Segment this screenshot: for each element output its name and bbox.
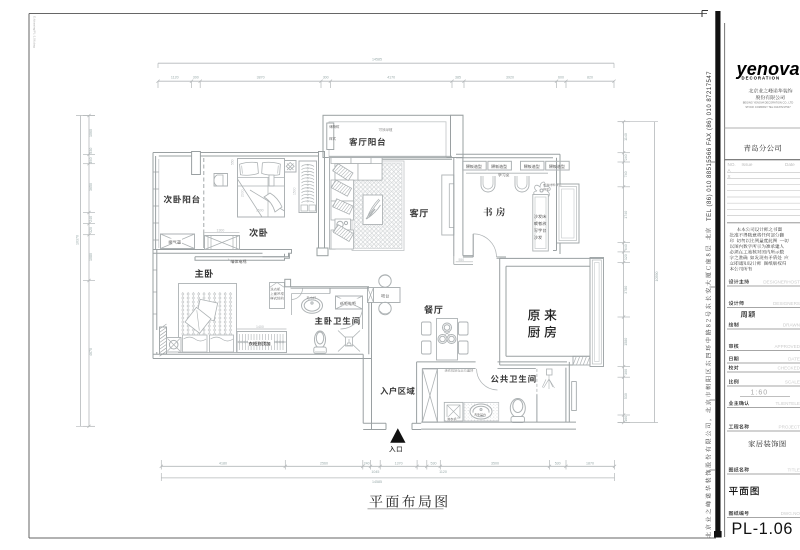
svg-text:DATE: DATE [788, 357, 800, 362]
svg-text:1300: 1300 [217, 228, 225, 232]
svg-text:TEL (86) 010 88515566 FAX (: TEL (86) 010 88515566 FAX (86) 010 87217… [707, 71, 713, 221]
svg-text:1500: 1500 [256, 209, 264, 213]
svg-text:10370: 10370 [76, 235, 80, 245]
svg-text:14585: 14585 [372, 480, 382, 484]
svg-text:SCALE: SCALE [785, 380, 800, 385]
svg-text:600: 600 [558, 76, 564, 80]
svg-text:550: 550 [231, 159, 235, 165]
svg-text:385: 385 [455, 76, 461, 80]
svg-text:Issue: Issue [742, 162, 753, 167]
svg-text:3650: 3650 [89, 183, 93, 191]
svg-text:320: 320 [624, 254, 628, 260]
svg-text:1120: 1120 [439, 470, 447, 474]
svg-text:3780: 3780 [624, 286, 628, 294]
svg-text:240: 240 [89, 157, 93, 163]
svg-text:TLIENTELE: TLIENTELE [775, 401, 800, 406]
svg-text:BEIJING YENOVA DECORATION CO.,: BEIJING YENOVA DECORATION CO., LTD [743, 101, 794, 105]
svg-text:4670: 4670 [89, 348, 93, 356]
svg-text:1120: 1120 [171, 76, 179, 80]
svg-text:1060: 1060 [89, 129, 93, 137]
svg-text:14585: 14585 [372, 58, 382, 62]
svg-text:300: 300 [624, 369, 628, 375]
svg-text:PROJECT: PROJECT [779, 425, 800, 430]
svg-text:DECORATION: DECORATION [742, 75, 781, 80]
svg-text:DESIGNERS: DESIGNERS [773, 301, 800, 306]
svg-text:Date: Date [785, 162, 795, 167]
svg-text:1:60: 1:60 [751, 390, 769, 397]
svg-text:1580: 1580 [624, 338, 628, 346]
svg-text:240: 240 [624, 154, 628, 160]
svg-text:530: 530 [431, 462, 437, 466]
svg-text:1140: 1140 [624, 133, 628, 141]
svg-text:160: 160 [624, 416, 628, 422]
svg-text:1370: 1370 [395, 462, 403, 466]
svg-text:CHECKED: CHECKED [778, 366, 800, 371]
svg-text:STOCK COMPANY TEL:010-87217547: STOCK COMPANY TEL:010-87217547 [745, 105, 791, 109]
svg-text:NO.: NO. [728, 162, 736, 167]
svg-text:10590: 10590 [655, 272, 659, 282]
svg-text:300: 300 [323, 76, 329, 80]
svg-text:A: A [728, 168, 732, 173]
svg-text:1870: 1870 [586, 462, 594, 466]
svg-text:APPROVED: APPROVED [774, 344, 800, 349]
svg-text:3870: 3870 [257, 76, 265, 80]
svg-text:DRAWN: DRAWN [783, 323, 800, 328]
svg-text:1080: 1080 [89, 253, 93, 261]
svg-text:2000: 2000 [241, 189, 245, 197]
svg-text:530: 530 [555, 462, 561, 466]
svg-text:740: 740 [624, 171, 628, 177]
svg-text:230: 230 [89, 148, 93, 154]
svg-text:320: 320 [89, 227, 93, 233]
svg-text:PL-1.06: PL-1.06 [732, 520, 794, 538]
svg-text:4180: 4180 [219, 462, 227, 466]
svg-text:X: X [728, 174, 731, 179]
svg-text:E:/drawing/PL-1.06.dwg: E:/drawing/PL-1.06.dwg [33, 16, 37, 48]
svg-text:530: 530 [624, 393, 628, 399]
svg-text:2560: 2560 [320, 462, 328, 466]
svg-text:240: 240 [89, 216, 93, 222]
svg-text:DESIGNERHOST: DESIGNERHOST [763, 280, 800, 285]
svg-text:DWG.NO: DWG.NO [781, 511, 800, 516]
svg-text:3920: 3920 [506, 76, 514, 80]
svg-text:3500: 3500 [491, 462, 499, 466]
svg-text:240: 240 [364, 462, 370, 466]
svg-text:1500: 1500 [293, 187, 297, 195]
svg-text:640: 640 [624, 244, 628, 250]
svg-text:820: 820 [587, 76, 593, 80]
svg-text:300: 300 [193, 76, 199, 80]
svg-text:1400: 1400 [256, 325, 264, 329]
svg-text:550: 550 [459, 258, 465, 262]
svg-text:TITLE: TITLE [787, 468, 800, 473]
svg-text:1045: 1045 [371, 470, 379, 474]
svg-text:1740: 1740 [624, 211, 628, 219]
svg-text:4170: 4170 [387, 76, 395, 80]
